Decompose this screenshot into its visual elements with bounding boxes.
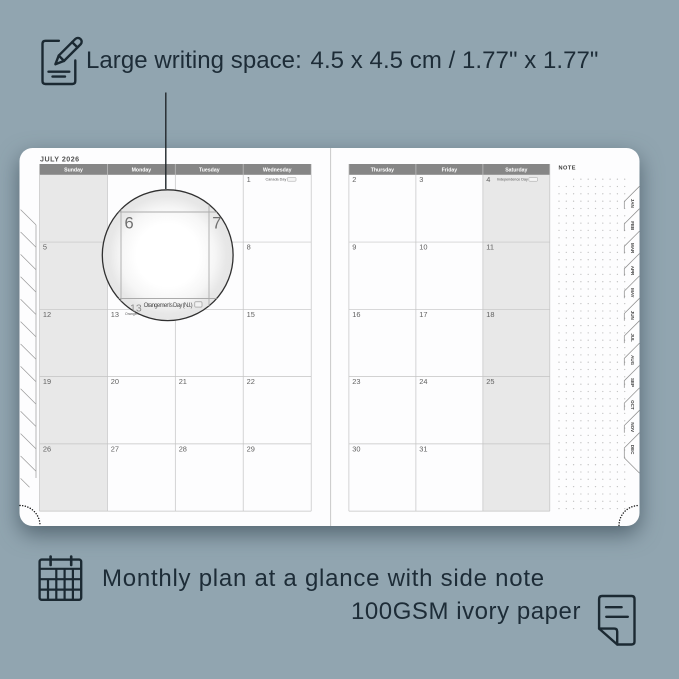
svg-text:19: 19 [43,377,51,386]
svg-text:17: 17 [419,310,427,319]
svg-text:30: 30 [352,444,360,453]
svg-text:NOTE: NOTE [559,166,577,172]
svg-text:11: 11 [486,243,494,252]
svg-text:5: 5 [43,243,47,252]
svg-text:JUL: JUL [630,333,635,342]
svg-text:OCT: OCT [630,400,635,410]
svg-text:20: 20 [111,377,119,386]
svg-text:23: 23 [352,377,360,386]
svg-text:24: 24 [419,377,427,386]
svg-text:6: 6 [125,215,134,233]
svg-text:13: 13 [111,310,119,319]
svg-text:Sunday: Sunday [64,167,83,173]
svg-text:MAR: MAR [630,243,635,254]
svg-text:Orangemen's Day (N.I.): Orangemen's Day (N.I.) [144,303,193,309]
svg-text:3: 3 [419,175,423,184]
svg-text:Canada Day: Canada Day [266,177,287,181]
svg-text:JULY 2026: JULY 2026 [40,156,80,164]
svg-text:9: 9 [352,243,356,252]
svg-text:29: 29 [247,444,255,453]
svg-text:12: 12 [43,310,51,319]
svg-text:Monday: Monday [132,167,152,173]
svg-text:APR: APR [630,266,635,276]
svg-text:JUN: JUN [630,311,635,320]
svg-text:SEP: SEP [630,378,635,387]
svg-text:18: 18 [486,310,494,319]
svg-text:1: 1 [247,175,251,184]
svg-text:MAY: MAY [630,288,635,298]
svg-text:4: 4 [486,175,490,184]
svg-text:31: 31 [419,444,427,453]
svg-text:Wednesday: Wednesday [263,167,292,173]
svg-text:22: 22 [247,377,255,386]
svg-text:26: 26 [43,444,51,453]
svg-text:10: 10 [419,243,427,252]
svg-text:Independence Day: Independence Day [497,177,528,181]
svg-text:Saturday: Saturday [505,167,527,173]
svg-text:27: 27 [111,444,119,453]
svg-text:Thursday: Thursday [371,167,394,173]
svg-text:21: 21 [179,377,187,386]
svg-text:16: 16 [352,310,360,319]
svg-text:DEC: DEC [630,445,635,455]
svg-text:AUG: AUG [630,355,635,365]
svg-text:15: 15 [247,310,255,319]
svg-text:FEB: FEB [630,221,635,231]
svg-text:Friday: Friday [442,167,458,173]
svg-text:28: 28 [179,444,187,453]
svg-text:Tuesday: Tuesday [199,167,220,173]
svg-text:7: 7 [212,215,221,233]
svg-text:NOV: NOV [630,422,635,432]
svg-text:2: 2 [352,175,356,184]
svg-text:JAN: JAN [630,199,635,208]
svg-text:25: 25 [486,377,494,386]
svg-text:8: 8 [247,243,251,252]
